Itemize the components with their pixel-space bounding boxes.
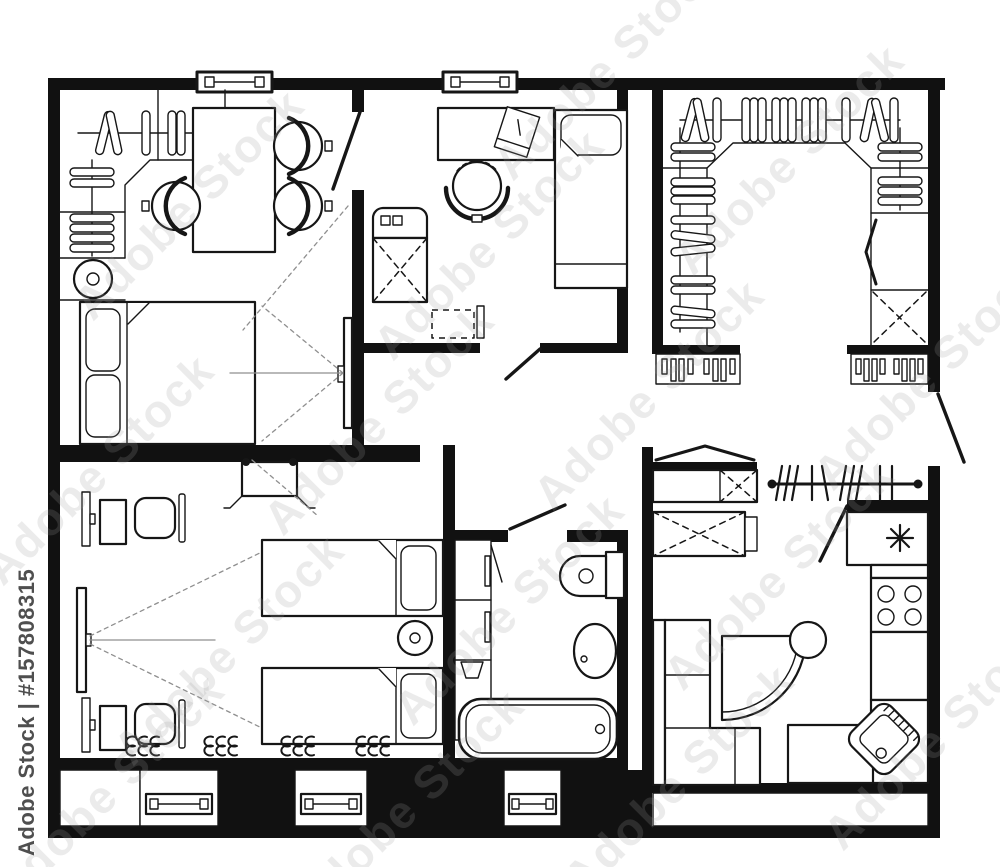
round-side-table: [398, 621, 432, 655]
watermark-credit: Adobe Stock | #157808315: [14, 569, 39, 856]
kitchen-round-stool: [790, 622, 826, 658]
crossed-cabinet: [653, 512, 757, 556]
oval-washbasin: [574, 624, 616, 678]
four-burner-stove: [871, 565, 928, 632]
window-top-center: [443, 72, 517, 92]
floor-plan-svg: Adobe Stock Adobe Stock Adobe Stock Adob…: [0, 0, 1000, 867]
window-top-left: [197, 72, 272, 92]
asterisk-symbol: [887, 525, 913, 551]
floor-plan-canvas: Adobe Stock Adobe Stock Adobe Stock Adob…: [0, 0, 1000, 867]
window-bottom-2: [295, 770, 367, 826]
window-bathroom: [504, 770, 561, 826]
appliance-cabinet: [373, 208, 427, 238]
